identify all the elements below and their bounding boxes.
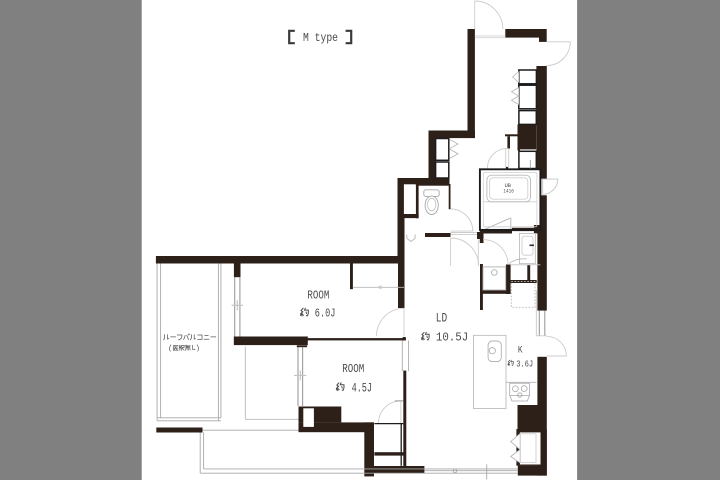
svg-text:LD: LD	[436, 311, 447, 325]
svg-text:6.0J: 6.0J	[315, 307, 336, 321]
svg-text:10.5J: 10.5J	[436, 331, 468, 345]
svg-text:1416: 1416	[503, 187, 514, 194]
svg-text:K: K	[518, 346, 523, 357]
svg-text:4.5J: 4.5J	[352, 382, 372, 396]
svg-text:3.6J: 3.6J	[516, 358, 533, 369]
svg-text:ROOM: ROOM	[307, 288, 329, 302]
svg-text:ROOM: ROOM	[342, 362, 364, 376]
svg-text:M type: M type	[303, 31, 338, 45]
